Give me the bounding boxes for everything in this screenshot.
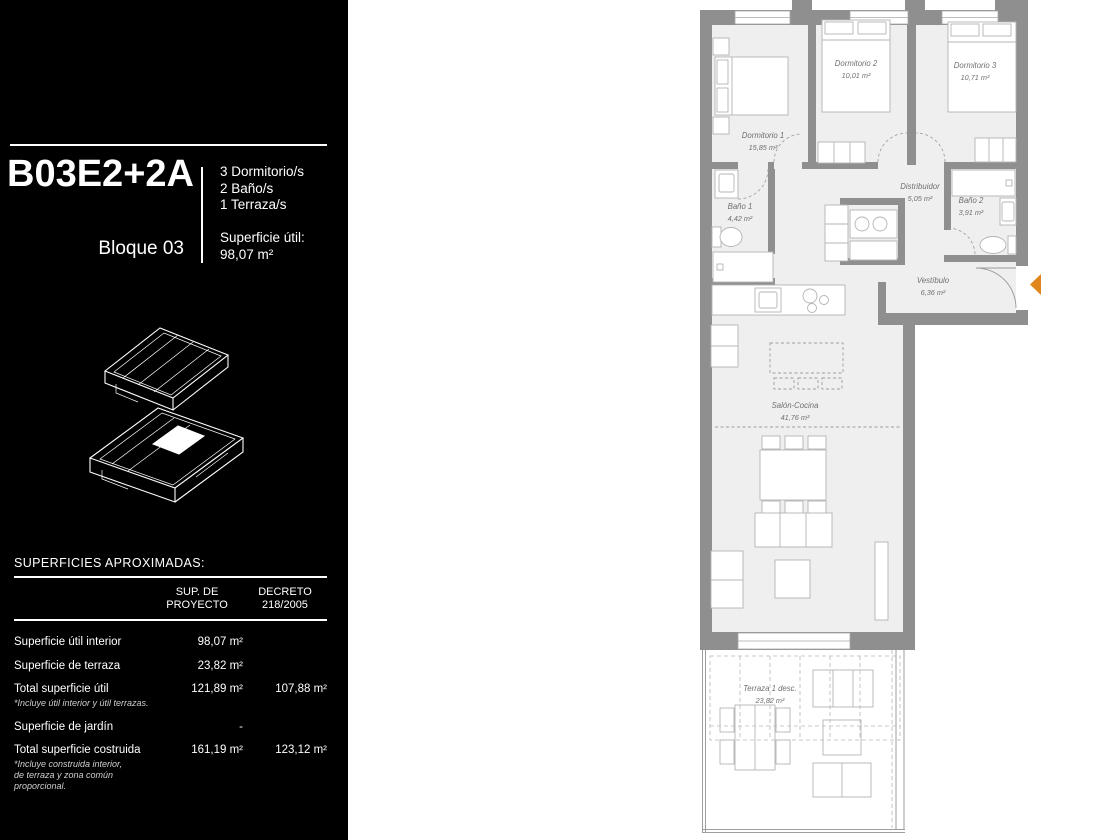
header-divider-line (10, 144, 327, 146)
floor-plan: Dormitorio 1 15,85 m² Dormitorio 2 10,01… (690, 0, 1097, 840)
floorplan-sheet: B03E2+2A Bloque 03 3 Dormitorio/s 2 Baño… (0, 0, 1097, 840)
table-row: Superficie de jardín - (14, 721, 327, 733)
coffee-table (775, 560, 810, 598)
room-area-dormitorio-3: 10,71 m² (961, 73, 990, 82)
column-header-decree: DECRETO 218/2005 (243, 586, 327, 612)
chair (720, 740, 734, 764)
row-decree-value: 123,12 m² (243, 744, 327, 756)
table-row: Superficie de terraza 23,82 m² (14, 660, 327, 672)
sofa (755, 513, 832, 547)
chair (776, 740, 790, 764)
specs-divider-line (201, 167, 203, 263)
entrance-opening (1016, 266, 1028, 310)
room-label-dormitorio-2: Dormitorio 2 (835, 59, 878, 68)
row-label: Superficie útil interior (14, 636, 155, 648)
table-rule-bottom (14, 619, 327, 621)
wardrobe (818, 142, 865, 163)
cooktop (803, 289, 817, 303)
room-label-distribuidor: Distribuidor (900, 182, 940, 191)
spec-bathrooms: 2 Baño/s (220, 181, 304, 198)
row-project-value: 23,82 m² (155, 660, 243, 672)
row-label: Superficie de terraza (14, 660, 155, 672)
block-name: Bloque 03 (0, 238, 184, 260)
chair (762, 436, 780, 449)
chair (785, 436, 803, 449)
chair (776, 708, 790, 732)
row-project-value: - (155, 721, 243, 733)
toilet (720, 228, 742, 247)
row-footnote: *Incluye útil interior y útil terrazas. (14, 698, 327, 709)
room-area-terraza: 23,82 m² (755, 696, 785, 705)
toilet (980, 237, 1006, 254)
unit-code: B03E2+2A (7, 153, 194, 196)
table-row: Total superficie costruida 161,19 m² 123… (14, 744, 327, 756)
surfaces-table: SUPERFICIES APROXIMADAS: SUP. DE PROYECT… (14, 556, 327, 792)
row-project-value: 121,89 m² (155, 683, 243, 695)
column-header-project: SUP. DE PROYECTO (151, 586, 243, 612)
upper-block-outline (105, 328, 228, 410)
dining-table (760, 450, 826, 500)
shower (952, 170, 1015, 196)
room-label-salon-cocina: Salón-Cocina (772, 401, 819, 410)
chair (785, 501, 803, 514)
room-label-dormitorio-1: Dormitorio 1 (742, 131, 784, 140)
outdoor-coffee-table (823, 720, 861, 755)
row-label: Superficie de jardín (14, 721, 155, 733)
chair (808, 501, 826, 514)
row-decree-value: 107,88 m² (243, 683, 327, 695)
wardrobe (975, 138, 1016, 162)
room-area-dormitorio-1: 15,85 m² (749, 143, 778, 152)
room-label-vestibulo: Vestíbulo (917, 276, 950, 285)
usable-area: Superficie útil: 98,07 m² (220, 230, 305, 263)
spec-terraces: 1 Terraza/s (220, 197, 304, 214)
table-rule-top (14, 576, 327, 578)
spec-bedrooms: 3 Dormitorio/s (220, 164, 304, 181)
table-row: Total superficie útil 121,89 m² 107,88 m… (14, 683, 327, 695)
chair (720, 708, 734, 732)
unit-specs: 3 Dormitorio/s 2 Baño/s 1 Terraza/s (220, 164, 304, 214)
sidebar: B03E2+2A Bloque 03 3 Dormitorio/s 2 Baño… (0, 0, 348, 840)
closet (825, 205, 848, 261)
toilet-tank (1008, 236, 1016, 254)
room-label-dormitorio-3: Dormitorio 3 (954, 61, 997, 70)
row-footnote: *Incluye construida interior, de terraza… (14, 759, 327, 792)
fridge (711, 325, 738, 346)
outdoor-sofa (813, 670, 873, 707)
row-label: Total superficie útil (14, 683, 155, 695)
floor-plan-drawing: Dormitorio 1 15,85 m² Dormitorio 2 10,01… (690, 0, 1097, 840)
usable-area-label: Superficie útil: (220, 230, 305, 247)
room-area-bano-2: 3,91 m² (959, 208, 984, 217)
surfaces-table-title: SUPERFICIES APROXIMADAS: (14, 556, 327, 570)
room-label-bano-1: Baño 1 (728, 202, 753, 211)
nightstand (713, 117, 729, 134)
usable-area-value: 98,07 m² (220, 247, 305, 264)
room-label-terraza: Terraza 1 desc. (743, 684, 796, 693)
tv-unit (875, 542, 888, 620)
room-area-distribuidor: 5,05 m² (908, 194, 933, 203)
chair (762, 501, 780, 514)
room-label-bano-2: Baño 2 (959, 196, 984, 205)
table-header-row: SUP. DE PROYECTO DECRETO 218/2005 (14, 586, 327, 612)
room-area-vestibulo: 6,36 m² (921, 288, 946, 297)
entrance-marker-icon (1030, 274, 1041, 295)
room-area-bano-1: 4,42 m² (728, 214, 753, 223)
row-project-value: 161,19 m² (155, 744, 243, 756)
table-row: Superficie útil interior 98,07 m² (14, 636, 327, 648)
row-label: Total superficie costruida (14, 744, 155, 756)
row-project-value: 98,07 m² (155, 636, 243, 648)
building-key-plan (78, 306, 278, 524)
highlighted-unit (153, 426, 204, 454)
sideboard (711, 551, 743, 608)
room-area-dormitorio-2: 10,01 m² (842, 71, 871, 80)
nightstand (713, 38, 729, 55)
lower-block-outline (90, 408, 243, 502)
room-area-salon-cocina: 41,76 m² (781, 413, 810, 422)
chair (808, 436, 826, 449)
tall-unit (711, 346, 738, 367)
